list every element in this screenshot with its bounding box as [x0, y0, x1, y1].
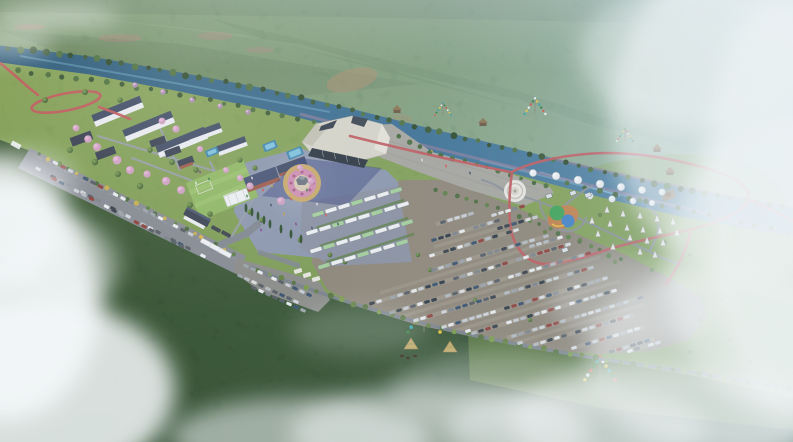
scene-svg	[0, 0, 793, 442]
mist-cloud	[290, 305, 430, 355]
atmosphere	[0, 0, 793, 442]
mist-cloud	[10, 220, 120, 310]
aerial-resort-rendering	[0, 0, 793, 442]
mist-cloud	[550, 255, 730, 345]
mist-cloud	[390, 352, 610, 432]
